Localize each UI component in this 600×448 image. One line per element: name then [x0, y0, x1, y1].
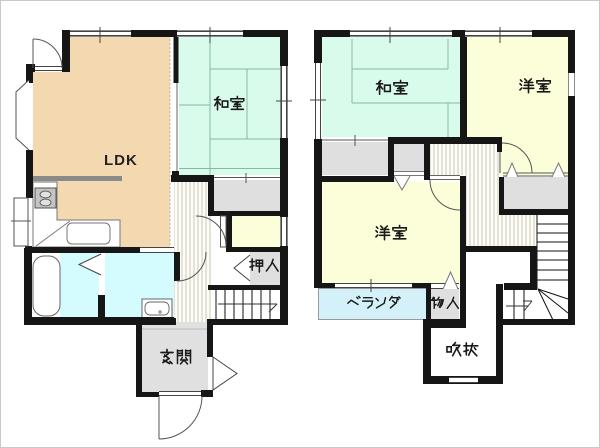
svg-text:LDK: LDK	[104, 152, 138, 169]
